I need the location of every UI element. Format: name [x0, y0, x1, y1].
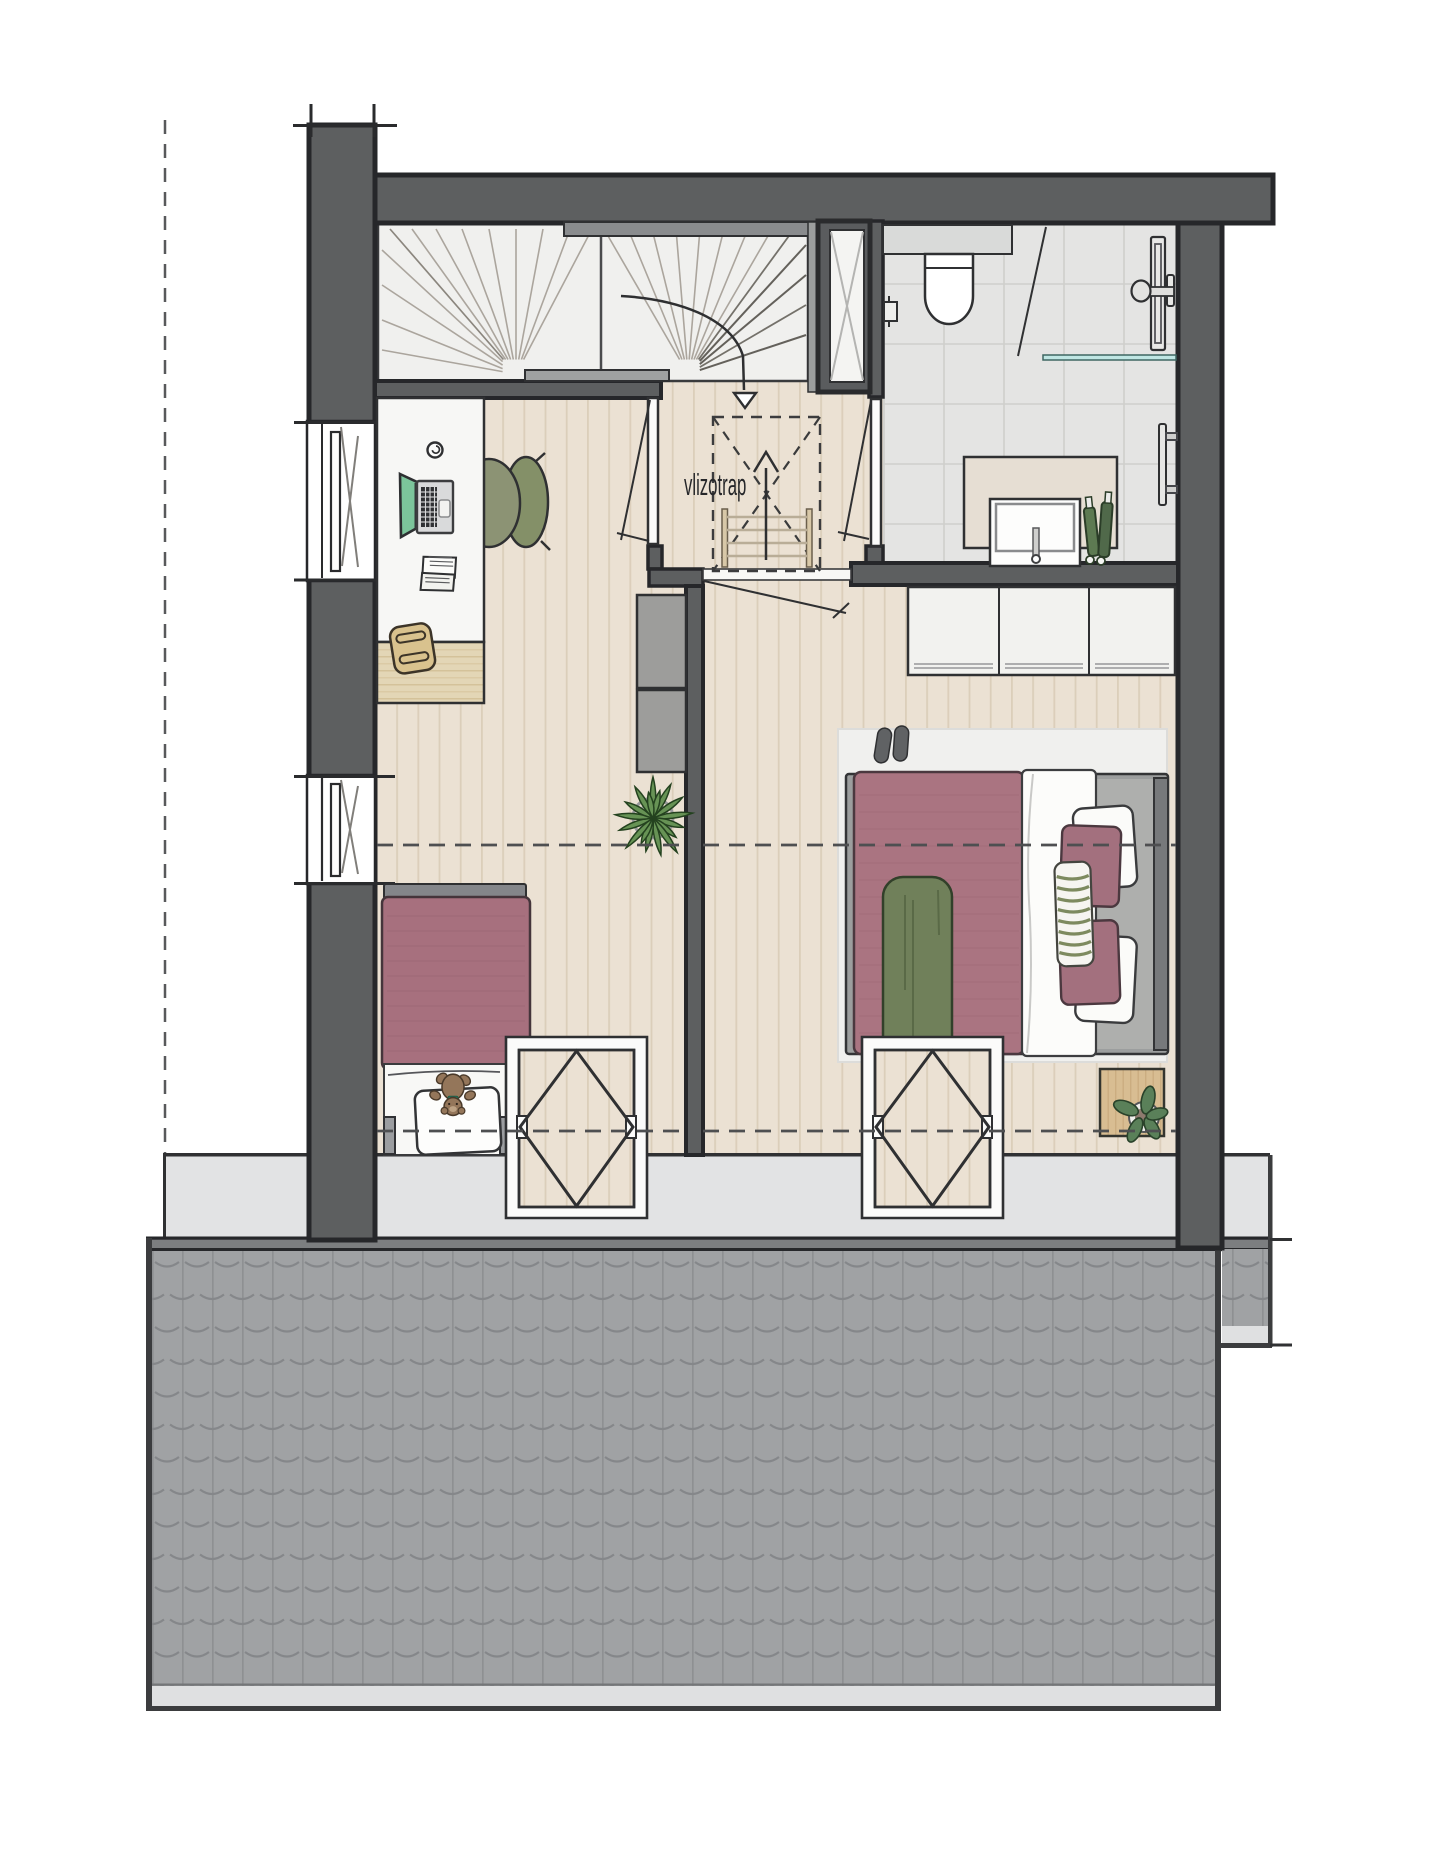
svg-text:vlizotrap: vlizotrap	[684, 468, 746, 503]
